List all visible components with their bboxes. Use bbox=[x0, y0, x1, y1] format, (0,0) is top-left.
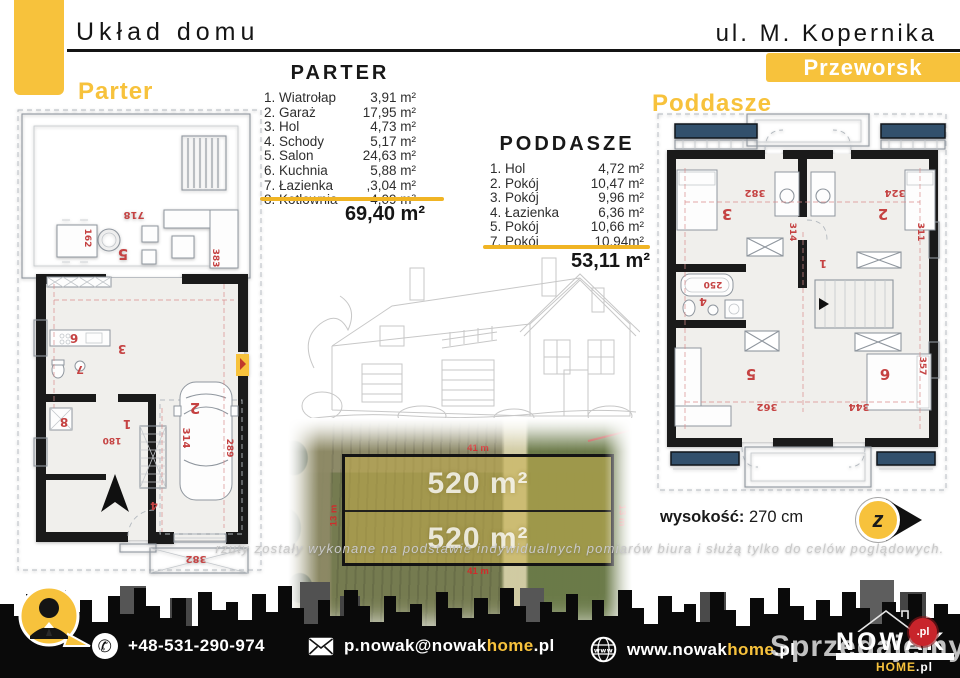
svg-text:382: 382 bbox=[186, 553, 207, 564]
room-name: 1. Hol bbox=[490, 162, 525, 177]
area-row: 5. Pokój 10,66 m² bbox=[490, 220, 644, 235]
parter-heading: PARTER bbox=[264, 62, 416, 85]
svg-text:250: 250 bbox=[704, 279, 723, 289]
header-rule bbox=[67, 49, 960, 52]
parter-area-list: PARTER 1. Wiatrołap 3,91 m² 2. Garaż 17,… bbox=[264, 62, 416, 208]
room-name: 2. Garaż bbox=[264, 106, 316, 121]
phone-number: +48-531-290-974 bbox=[128, 636, 265, 656]
svg-text:2: 2 bbox=[190, 399, 200, 417]
area-row: 5. Salon 24,63 m² bbox=[264, 149, 416, 164]
svg-text:3: 3 bbox=[722, 205, 732, 223]
disclaimer-text: rzuty zostały wykonane na podstawie indy… bbox=[210, 541, 950, 556]
email-text: p.nowak@nowakhome.pl bbox=[344, 636, 555, 656]
room-area: ,3,04 m² bbox=[366, 179, 416, 194]
svg-text:5: 5 bbox=[118, 245, 128, 263]
room-area: 10,47 m² bbox=[591, 177, 644, 192]
house-sketch bbox=[292, 248, 640, 446]
room-area: 4,72 m² bbox=[598, 162, 644, 177]
room-name: 7. Łazienka bbox=[264, 179, 333, 194]
svg-text:6: 6 bbox=[70, 331, 78, 345]
area-row: 7. Łazienka ,3,04 m² bbox=[264, 179, 416, 194]
svg-text:4: 4 bbox=[150, 499, 158, 512]
svg-text:5: 5 bbox=[746, 365, 756, 383]
email-contact[interactable]: p.nowak@nowakhome.pl bbox=[308, 636, 555, 656]
room-area: 10,66 m² bbox=[591, 220, 644, 235]
area-row: 1. Hol 4,72 m² bbox=[490, 162, 644, 177]
room-area: 24,63 m² bbox=[363, 149, 416, 164]
svg-text:4: 4 bbox=[699, 295, 707, 308]
room-name: 4. Schody bbox=[264, 135, 324, 150]
parter-total: 69,40 m² bbox=[264, 203, 425, 226]
room-name: 4. Łazienka bbox=[490, 206, 559, 221]
website-contact[interactable]: www www.nowakhome.pl bbox=[590, 636, 795, 663]
poddasze-rows: 1. Hol 4,72 m² 2. Pokój 10,47 m² 3. Pokó… bbox=[490, 162, 644, 250]
label-parter: Parter bbox=[78, 78, 153, 106]
svg-text:162: 162 bbox=[82, 229, 92, 248]
svg-text:8: 8 bbox=[60, 415, 68, 429]
room-name: 1. Wiatrołap bbox=[264, 91, 336, 106]
poddasze-floorplan: 3 2 1 4 5 6 382 324 314 311 250 362 344 … bbox=[655, 112, 950, 495]
svg-text:✆: ✆ bbox=[98, 637, 113, 657]
flyer-canvas: Układ domu ul. M. Kopernika Przeworsk Pa… bbox=[0, 0, 960, 678]
svg-text:6: 6 bbox=[880, 365, 890, 383]
room-area: 5,88 m² bbox=[370, 164, 416, 179]
header-accent-bar bbox=[14, 0, 64, 95]
room-name: 3. Hol bbox=[264, 120, 299, 135]
svg-text:7: 7 bbox=[76, 363, 84, 376]
svg-text:311: 311 bbox=[915, 223, 925, 242]
svg-text:2: 2 bbox=[878, 205, 888, 223]
svg-text:362: 362 bbox=[757, 401, 778, 412]
parter-underline bbox=[260, 197, 444, 201]
room-name: 6. Kuchnia bbox=[264, 164, 328, 179]
area-row: 4. Łazienka 6,36 m² bbox=[490, 206, 644, 221]
page-title: Układ domu bbox=[76, 18, 259, 47]
globe-www-icon: www bbox=[590, 636, 617, 663]
svg-text:314: 314 bbox=[180, 428, 191, 449]
svg-text:357: 357 bbox=[917, 357, 927, 376]
svg-text:383: 383 bbox=[210, 249, 220, 268]
poddasze-area-list: PODDASZE 1. Hol 4,72 m² 2. Pokój 10,47 m… bbox=[490, 133, 644, 250]
svg-text:1: 1 bbox=[819, 257, 827, 270]
svg-text:382: 382 bbox=[745, 187, 766, 198]
room-area: 6,36 m² bbox=[598, 206, 644, 221]
svg-text:344: 344 bbox=[849, 401, 870, 412]
area-row: 4. Schody 5,17 m² bbox=[264, 135, 416, 150]
envelope-icon bbox=[308, 637, 334, 656]
room-name: 3. Pokój bbox=[490, 191, 539, 206]
svg-text:1: 1 bbox=[123, 417, 131, 431]
svg-text:324: 324 bbox=[885, 187, 906, 198]
svg-text:180: 180 bbox=[103, 435, 122, 445]
height-label: wysokość: bbox=[660, 508, 744, 526]
room-area: 9,96 m² bbox=[598, 191, 644, 206]
room-name: 2. Pokój bbox=[490, 177, 539, 192]
area-row: 2. Pokój 10,47 m² bbox=[490, 177, 644, 192]
area-row: 3. Pokój 9,96 m² bbox=[490, 191, 644, 206]
svg-text:289: 289 bbox=[224, 439, 234, 458]
area-row: 2. Garaż 17,95 m² bbox=[264, 106, 416, 121]
area-row: 3. Hol 4,73 m² bbox=[264, 120, 416, 135]
phone-icon: ✆ bbox=[92, 633, 118, 659]
room-name: 5. Pokój bbox=[490, 220, 539, 235]
room-area: 5,17 m² bbox=[370, 135, 416, 150]
height-value: 270 cm bbox=[749, 508, 803, 526]
room-area: 17,95 m² bbox=[363, 106, 416, 121]
agent-avatar bbox=[16, 584, 94, 656]
room-area: 3,91 m² bbox=[370, 91, 416, 106]
city-badge: Przeworsk bbox=[766, 53, 960, 82]
svg-text:3: 3 bbox=[118, 342, 126, 356]
room-area: 4,73 m² bbox=[370, 120, 416, 135]
brand-z-icon: z bbox=[856, 498, 900, 542]
area-row: 1. Wiatrołap 3,91 m² bbox=[264, 91, 416, 106]
parter-floorplan: 5 3 6 7 8 1 2 4 718 382 180 314 289 383 … bbox=[14, 108, 265, 575]
area-row: 6. Kuchnia 5,88 m² bbox=[264, 164, 416, 179]
watermark-pl-badge[interactable]: .pl bbox=[909, 618, 937, 646]
room-name: 5. Salon bbox=[264, 149, 314, 164]
ceiling-height-note: wysokość: 270 cm bbox=[660, 508, 803, 527]
phone-contact[interactable]: ✆ +48-531-290-974 bbox=[92, 633, 265, 659]
next-page-button[interactable]: z bbox=[856, 496, 930, 544]
svg-text:www: www bbox=[594, 647, 613, 655]
parter-rows: 1. Wiatrołap 3,91 m² 2. Garaż 17,95 m² 3… bbox=[264, 91, 416, 208]
poddasze-heading: PODDASZE bbox=[490, 133, 644, 156]
address-title: ul. M. Kopernika bbox=[716, 20, 937, 48]
svg-text:718: 718 bbox=[124, 209, 145, 220]
svg-text:314: 314 bbox=[787, 223, 797, 242]
